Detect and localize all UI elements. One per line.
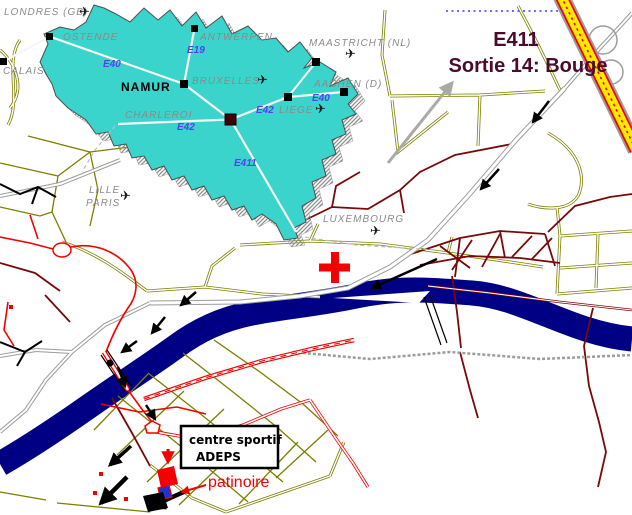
city-marker-ostende — [46, 33, 53, 40]
city-label-maastricht: MAASTRICHT (NL) — [309, 38, 411, 49]
city-label-namur: NAMUR — [121, 80, 171, 94]
red-roundabout — [53, 243, 71, 257]
road-map: LONDRES (GB) ✈ OSTENDE CALAIS ANTWERPEN … — [0, 0, 632, 515]
red-dot-marker — [9, 305, 13, 309]
city-label-liege: LIEGE — [279, 105, 313, 116]
red-dot-marker — [93, 491, 97, 495]
cross-horizontal-bar — [319, 264, 350, 272]
eroad-label-e40: E40 — [103, 59, 121, 70]
city-marker-calais — [0, 58, 7, 65]
city-label-calais: CALAIS — [3, 66, 45, 77]
city-label-antwerpen: ANTWERPEN — [199, 32, 273, 43]
city-label-londres: LONDRES (GB) — [4, 7, 88, 18]
airplane-icon: ✈ — [79, 5, 90, 20]
red-dot-marker — [124, 497, 128, 501]
city-label-luxembourg: LUXEMBOURG — [323, 214, 404, 225]
eroad-label-e19: E19 — [187, 45, 205, 56]
eroad-label-e40-east: E40 — [312, 93, 330, 104]
eroad-label-e411: E411 — [234, 158, 257, 169]
exit-callout-line2: Sortie 14: Bouge — [449, 55, 608, 77]
city-label-lille: LILLE — [89, 185, 120, 196]
city-label-ostende: OSTENDE — [63, 32, 118, 43]
exit-callout-line1: E411 — [493, 29, 539, 51]
junction-dot — [107, 360, 114, 367]
airplane-icon: ✈ — [370, 224, 381, 239]
eroad-label-e42-east: E42 — [256, 105, 274, 116]
venue-label-line1: centre sportif — [189, 433, 283, 447]
patinoire-label: patinoire — [208, 474, 269, 491]
city-label-charleroi: CHARLEROI — [125, 110, 192, 121]
city-marker-liege — [284, 93, 292, 101]
airplane-icon: ✈ — [257, 73, 268, 88]
city-marker-antwerpen — [191, 25, 198, 32]
city-label-paris: PARIS — [86, 198, 120, 209]
city-label-bruxelles: BRUXELLES — [192, 76, 260, 87]
airplane-icon: ✈ — [120, 189, 131, 204]
red-dot-marker — [99, 472, 103, 476]
venue-callout-box: centre sportif ADEPS — [181, 426, 283, 468]
map-canvas: LONDRES (GB) ✈ OSTENDE CALAIS ANTWERPEN … — [0, 0, 632, 515]
venue-label-line2: ADEPS — [196, 450, 241, 464]
city-label-aachen: AACHEN (D) — [313, 79, 382, 90]
eroad-label-e42-west: E42 — [177, 122, 195, 133]
city-marker-namur-junction — [225, 114, 236, 125]
airplane-icon: ✈ — [315, 102, 326, 117]
airplane-icon: ✈ — [345, 47, 356, 62]
city-marker-maastricht — [312, 58, 320, 66]
city-marker-bruxelles — [180, 80, 188, 88]
